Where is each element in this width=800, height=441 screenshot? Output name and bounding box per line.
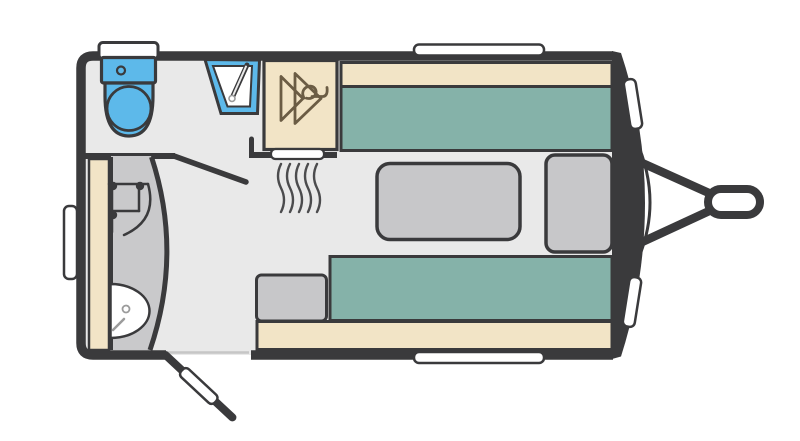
- front-bench-backrest: [341, 63, 612, 87]
- toilet-cistern: [102, 58, 156, 84]
- front-bench-cushion: [341, 87, 612, 151]
- rear-bench-backrest: [257, 322, 612, 350]
- window-top: [414, 45, 544, 56]
- door-leaf: [162, 351, 236, 421]
- caravan-floorplan-page: [0, 0, 800, 441]
- mixer-knob: [109, 211, 117, 219]
- toilet-seat: [107, 87, 151, 131]
- basin-tap-knob: [229, 96, 235, 102]
- tow-hitch: [636, 140, 760, 264]
- front-chest: [546, 155, 612, 252]
- storage-box: [257, 275, 327, 321]
- vanity-unit: [89, 159, 109, 350]
- heater-vent: [271, 149, 324, 159]
- mixer-knob: [109, 182, 117, 190]
- mixer-knob: [136, 182, 144, 190]
- toilet: [99, 43, 158, 137]
- shower-drain: [123, 306, 130, 313]
- window-left: [64, 206, 77, 279]
- toilet-flush-button: [117, 67, 125, 75]
- caravan-floorplan-canvas: [0, 0, 800, 441]
- dinette-table: [377, 164, 520, 240]
- tow-ball-coupling: [708, 189, 760, 215]
- wardrobe-cabinet: [264, 61, 337, 150]
- rear-bench-cushion: [330, 257, 612, 321]
- door-leaf-panel: [178, 366, 219, 405]
- window-bottom: [414, 352, 544, 363]
- entrance-door: [162, 351, 249, 421]
